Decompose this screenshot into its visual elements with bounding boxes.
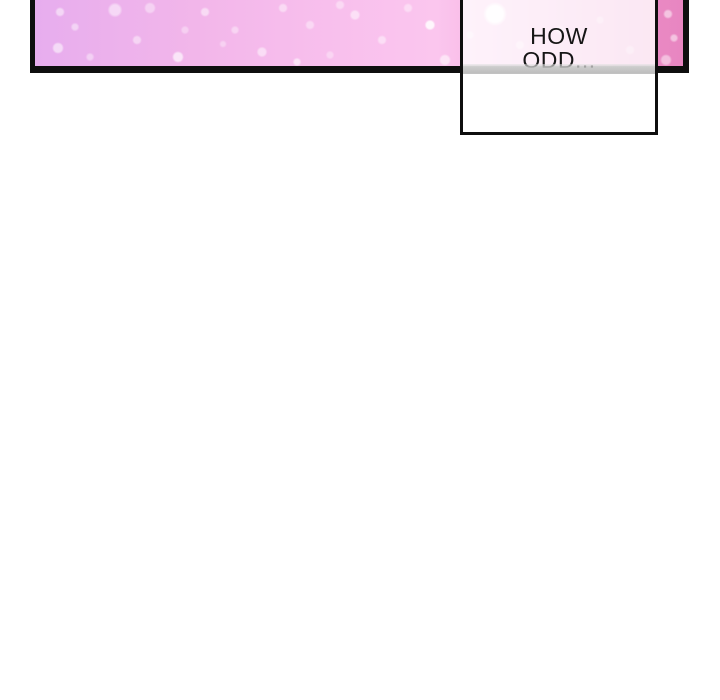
caption-line-2: ODD... <box>463 48 655 72</box>
caption-line-1: HOW <box>463 24 655 48</box>
comic-page: HOW ODD... <box>0 0 720 700</box>
caption-box: HOW ODD... <box>460 0 658 135</box>
caption-text: HOW ODD... <box>463 24 655 72</box>
